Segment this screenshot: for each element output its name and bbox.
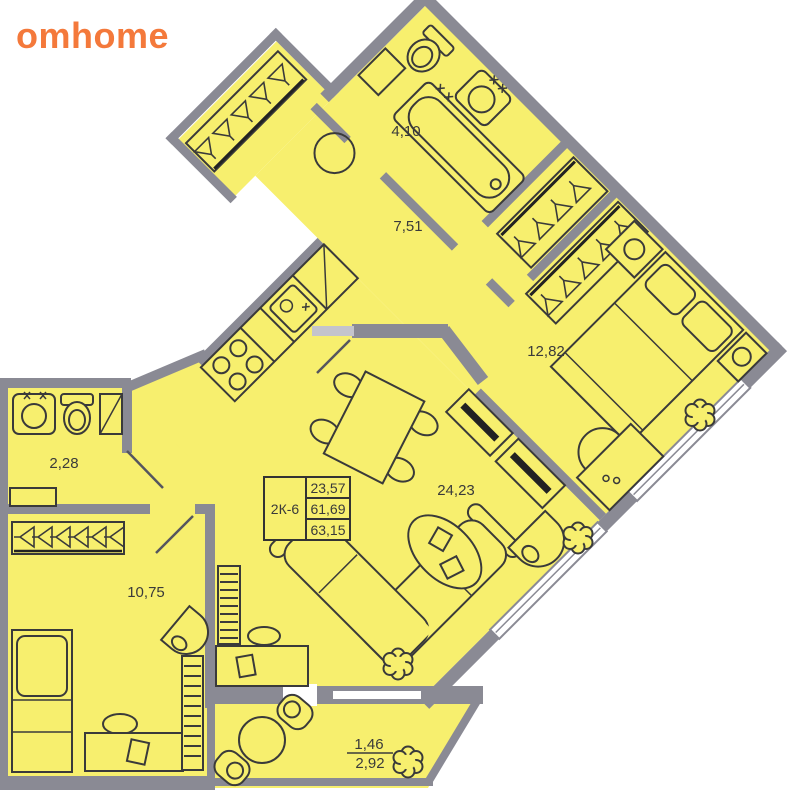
wc-mirror	[100, 394, 122, 434]
shelf-rack-outer	[218, 566, 240, 644]
wc-cabinet	[10, 488, 56, 506]
room-label-wc: 2,28	[49, 455, 78, 472]
shelf-rack-inner	[182, 656, 203, 770]
floor-plan: 4,10 7,51 12,82 2,28 24,23 10,75 1,46 2,…	[0, 0, 809, 800]
unit-area-2: 61,69	[310, 501, 345, 517]
bedroom2-closet	[12, 522, 124, 554]
room-label-living: 24,23	[437, 482, 475, 499]
room-label-bedroom2: 10,75	[127, 584, 165, 601]
unit-info-box: 2К-6 23,57 61,69 63,15	[264, 477, 350, 540]
unit-area-1: 23,57	[310, 480, 345, 496]
room-label-hallway: 7,51	[393, 218, 422, 235]
room-label-bathroom: 4,10	[391, 123, 420, 140]
unit-code: 2К-6	[271, 501, 300, 517]
balcony-area-reduced: 1,46	[354, 736, 383, 753]
single-bed	[12, 630, 72, 772]
balcony-table	[239, 717, 285, 763]
balcony-window	[332, 690, 422, 700]
floorplan-page: 4,10 7,51 12,82 2,28 24,23 10,75 1,46 2,…	[0, 0, 809, 800]
balcony-area-full: 2,92	[355, 755, 384, 772]
unit-area-3: 63,15	[310, 522, 345, 538]
omhome-logo: omhome	[16, 15, 169, 56]
room-label-bedroom: 12,82	[527, 343, 565, 360]
wc-toilet-icon	[61, 394, 93, 434]
wc-sink-icon	[13, 392, 55, 434]
